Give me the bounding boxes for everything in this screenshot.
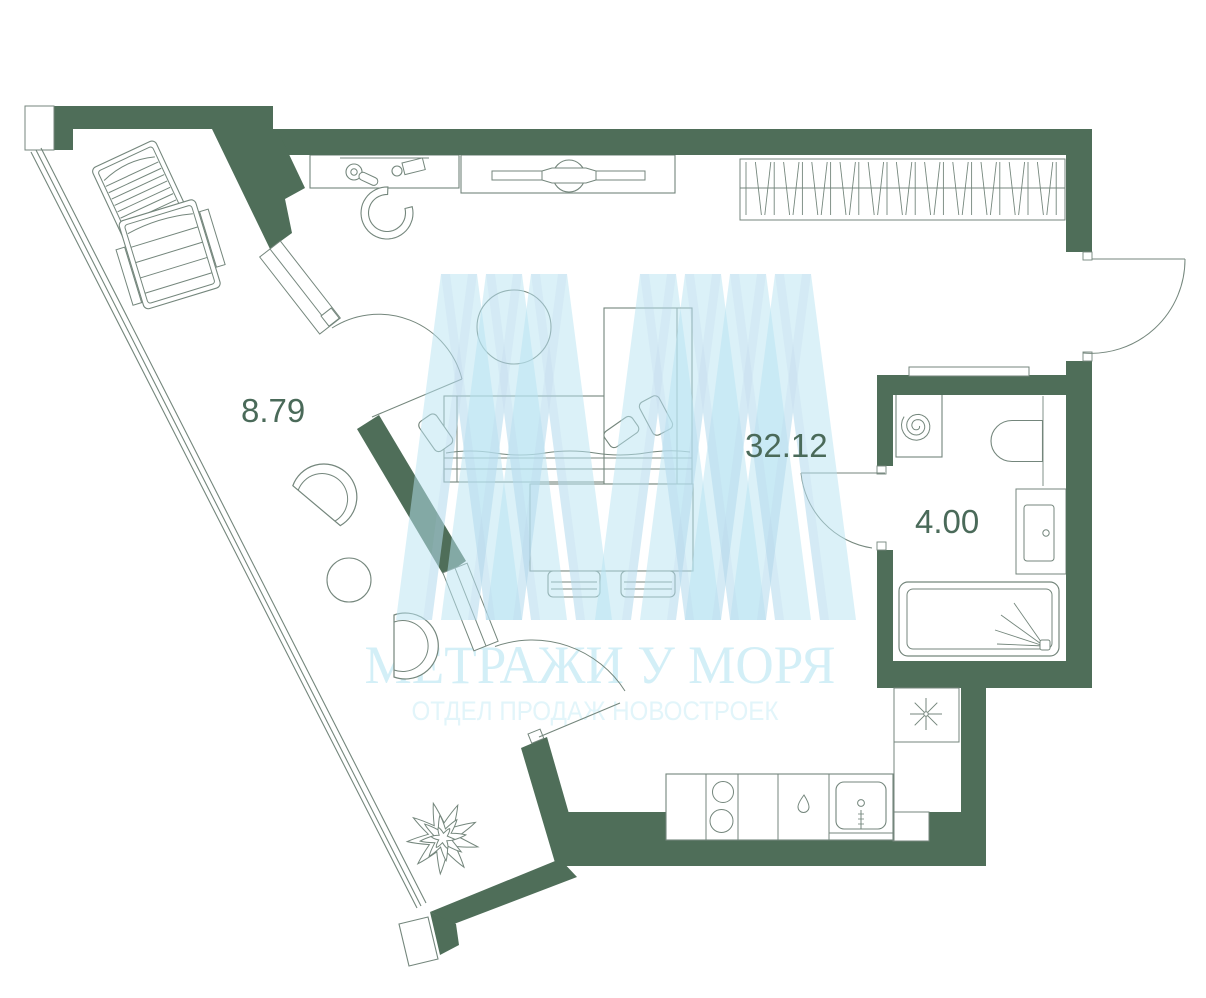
svg-text:ОТДЕЛ ПРОДАЖ НОВОСТРОЕК: ОТДЕЛ ПРОДАЖ НОВОСТРОЕК (412, 696, 779, 726)
svg-text:8.79: 8.79 (241, 392, 305, 429)
svg-text:32.12: 32.12 (745, 427, 828, 464)
svg-text:4.00: 4.00 (915, 503, 979, 540)
